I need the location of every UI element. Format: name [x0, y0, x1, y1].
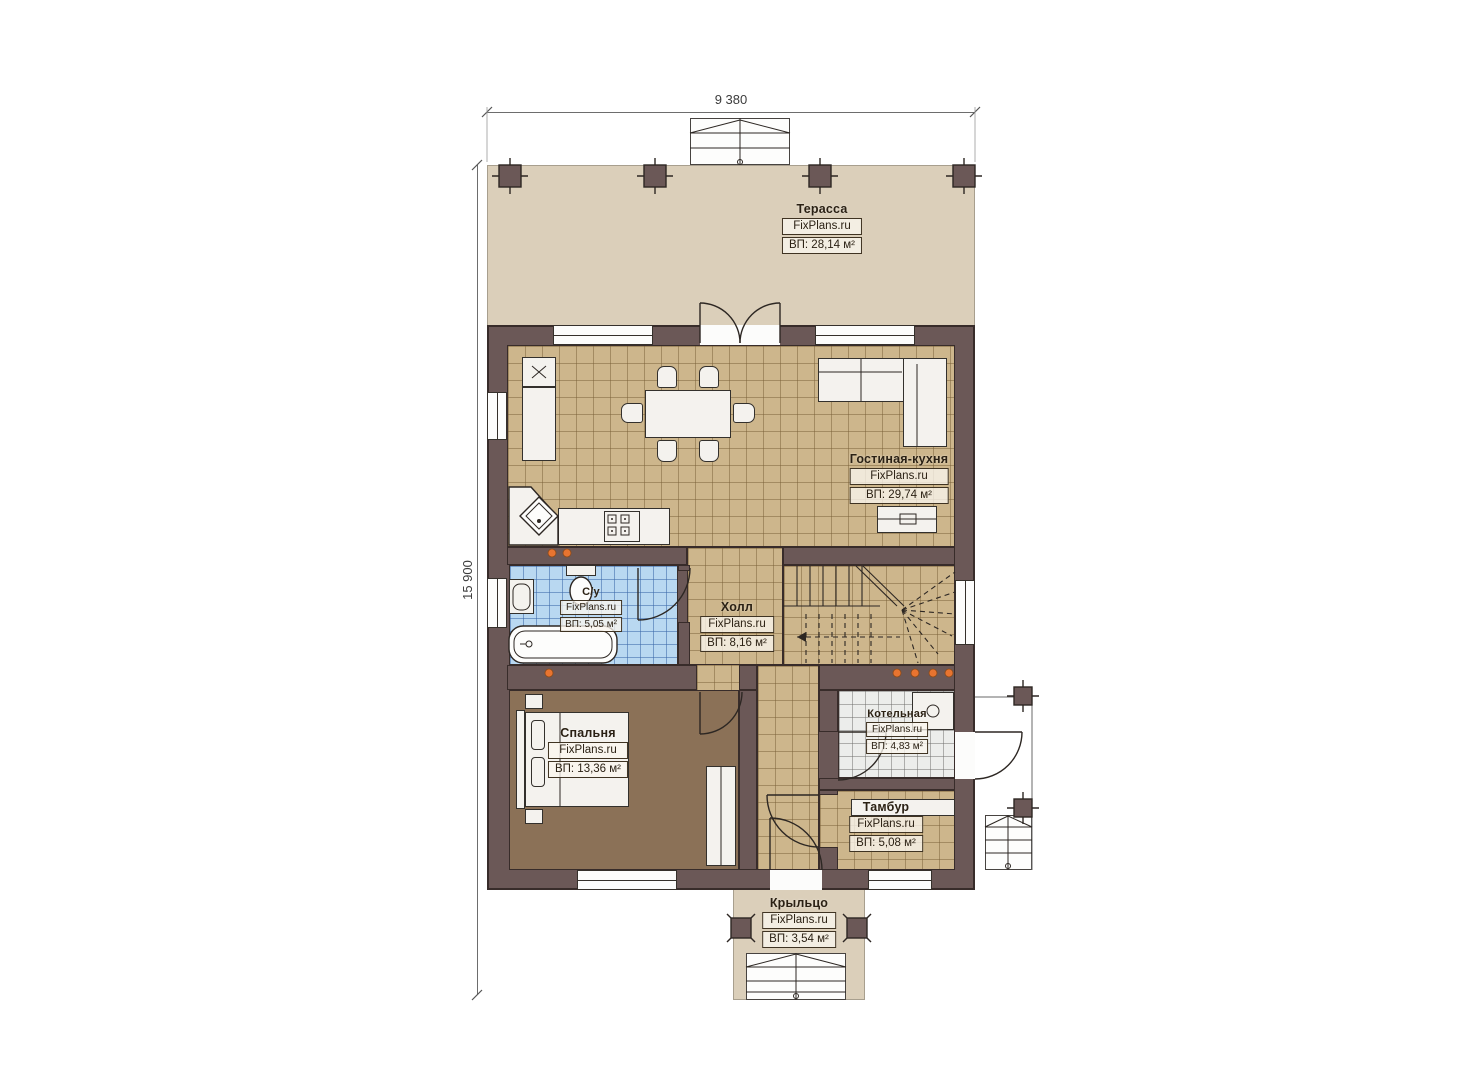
room-label-terrace: Терасса FixPlans.ru ВП: 28,14 м² — [782, 202, 862, 254]
room-name: Гостиная-кухня — [850, 452, 949, 466]
interior-wall — [507, 665, 697, 690]
pillow — [531, 757, 545, 787]
terrace-door-opening — [700, 325, 780, 345]
dimension-line-top — [487, 112, 975, 113]
floor-plan: 9 380 15 900 — [0, 0, 1473, 1080]
kitchen-cabinet — [522, 387, 556, 461]
room-name: С/у — [560, 586, 622, 598]
chair — [621, 403, 643, 423]
sofa-chaise — [903, 358, 947, 447]
interior-wall — [739, 690, 757, 870]
interior-wall — [678, 622, 690, 665]
interior-wall — [507, 547, 687, 565]
stove — [604, 511, 640, 542]
interior-wall — [678, 565, 690, 571]
nightstand — [525, 694, 543, 709]
room-brand: FixPlans.ru — [782, 218, 862, 235]
room-brand: FixPlans.ru — [560, 600, 622, 615]
toilet-tank — [566, 565, 596, 576]
window — [487, 578, 507, 628]
room-label-boiler: Котельная FixPlans.ru ВП: 4,83 м² — [866, 708, 928, 754]
room-label-bathroom: С/у FixPlans.ru ВП: 5,05 м² — [560, 586, 622, 632]
room-brand: FixPlans.ru — [849, 816, 923, 833]
room-name: Холл — [700, 600, 774, 614]
interior-wall — [819, 778, 955, 790]
room-name: Спальня — [548, 726, 628, 740]
chair — [699, 440, 719, 462]
room-area: ВП: 28,14 м² — [782, 237, 862, 254]
window — [487, 392, 507, 440]
fridge — [522, 357, 556, 387]
room-label-hall: Холл FixPlans.ru ВП: 8,16 м² — [700, 600, 774, 652]
bed-headboard — [516, 710, 525, 809]
room-area: ВП: 13,36 м² — [548, 761, 628, 778]
dimension-left-label: 15 900 — [460, 530, 476, 630]
window — [868, 870, 932, 890]
room-area: ВП: 5,05 м² — [560, 617, 622, 632]
chair — [657, 366, 677, 388]
pillow — [531, 720, 545, 750]
room-area: ВП: 3,54 м² — [762, 931, 836, 948]
corridor-floor — [757, 665, 819, 870]
room-brand: FixPlans.ru — [762, 912, 836, 929]
washbasin — [509, 579, 534, 614]
chair — [699, 366, 719, 388]
wardrobe — [706, 766, 736, 866]
room-label-bedroom: Спальня FixPlans.ru ВП: 13,36 м² — [548, 726, 628, 778]
bedroom-door-threshold — [697, 665, 739, 690]
room-label-porch: Крыльцо FixPlans.ru ВП: 3,54 м² — [762, 896, 836, 948]
room-name: Тамбур — [849, 800, 923, 814]
chair — [657, 440, 677, 462]
room-label-living-kitchen: Гостиная-кухня FixPlans.ru ВП: 29,74 м² — [850, 452, 949, 504]
room-brand: FixPlans.ru — [850, 468, 949, 485]
room-label-vestibule: Тамбур FixPlans.ru ВП: 5,08 м² — [849, 800, 923, 852]
room-area: ВП: 8,16 м² — [700, 635, 774, 652]
window — [553, 325, 653, 345]
nightstand — [525, 809, 543, 824]
tv-stand — [877, 506, 937, 533]
terrace-steps — [690, 118, 790, 165]
interior-wall — [739, 665, 757, 690]
entry-door-opening — [770, 870, 822, 890]
room-brand: FixPlans.ru — [700, 616, 774, 633]
room-brand: FixPlans.ru — [866, 722, 928, 737]
window — [815, 325, 915, 345]
room-area: ВП: 5,08 м² — [849, 835, 923, 852]
window — [577, 870, 677, 890]
interior-wall — [783, 547, 955, 565]
chair — [733, 403, 755, 423]
room-area: ВП: 29,74 м² — [850, 487, 949, 504]
dimension-line-left — [477, 165, 478, 995]
side-door-opening — [955, 732, 975, 779]
dimension-top-label: 9 380 — [651, 92, 811, 108]
side-steps — [985, 815, 1032, 870]
room-area: ВП: 4,83 м² — [866, 739, 928, 754]
dining-table — [645, 390, 731, 438]
porch-steps — [746, 953, 846, 1000]
interior-wall — [819, 790, 838, 795]
room-name: Терасса — [782, 202, 862, 216]
window — [955, 580, 975, 645]
terrace-floor — [487, 165, 975, 326]
room-brand: FixPlans.ru — [548, 742, 628, 759]
stairs-floor — [783, 565, 955, 665]
interior-wall — [819, 665, 955, 690]
interior-wall — [819, 847, 838, 870]
interior-wall — [819, 690, 838, 732]
room-name: Котельная — [866, 708, 928, 720]
room-name: Крыльцо — [762, 896, 836, 910]
